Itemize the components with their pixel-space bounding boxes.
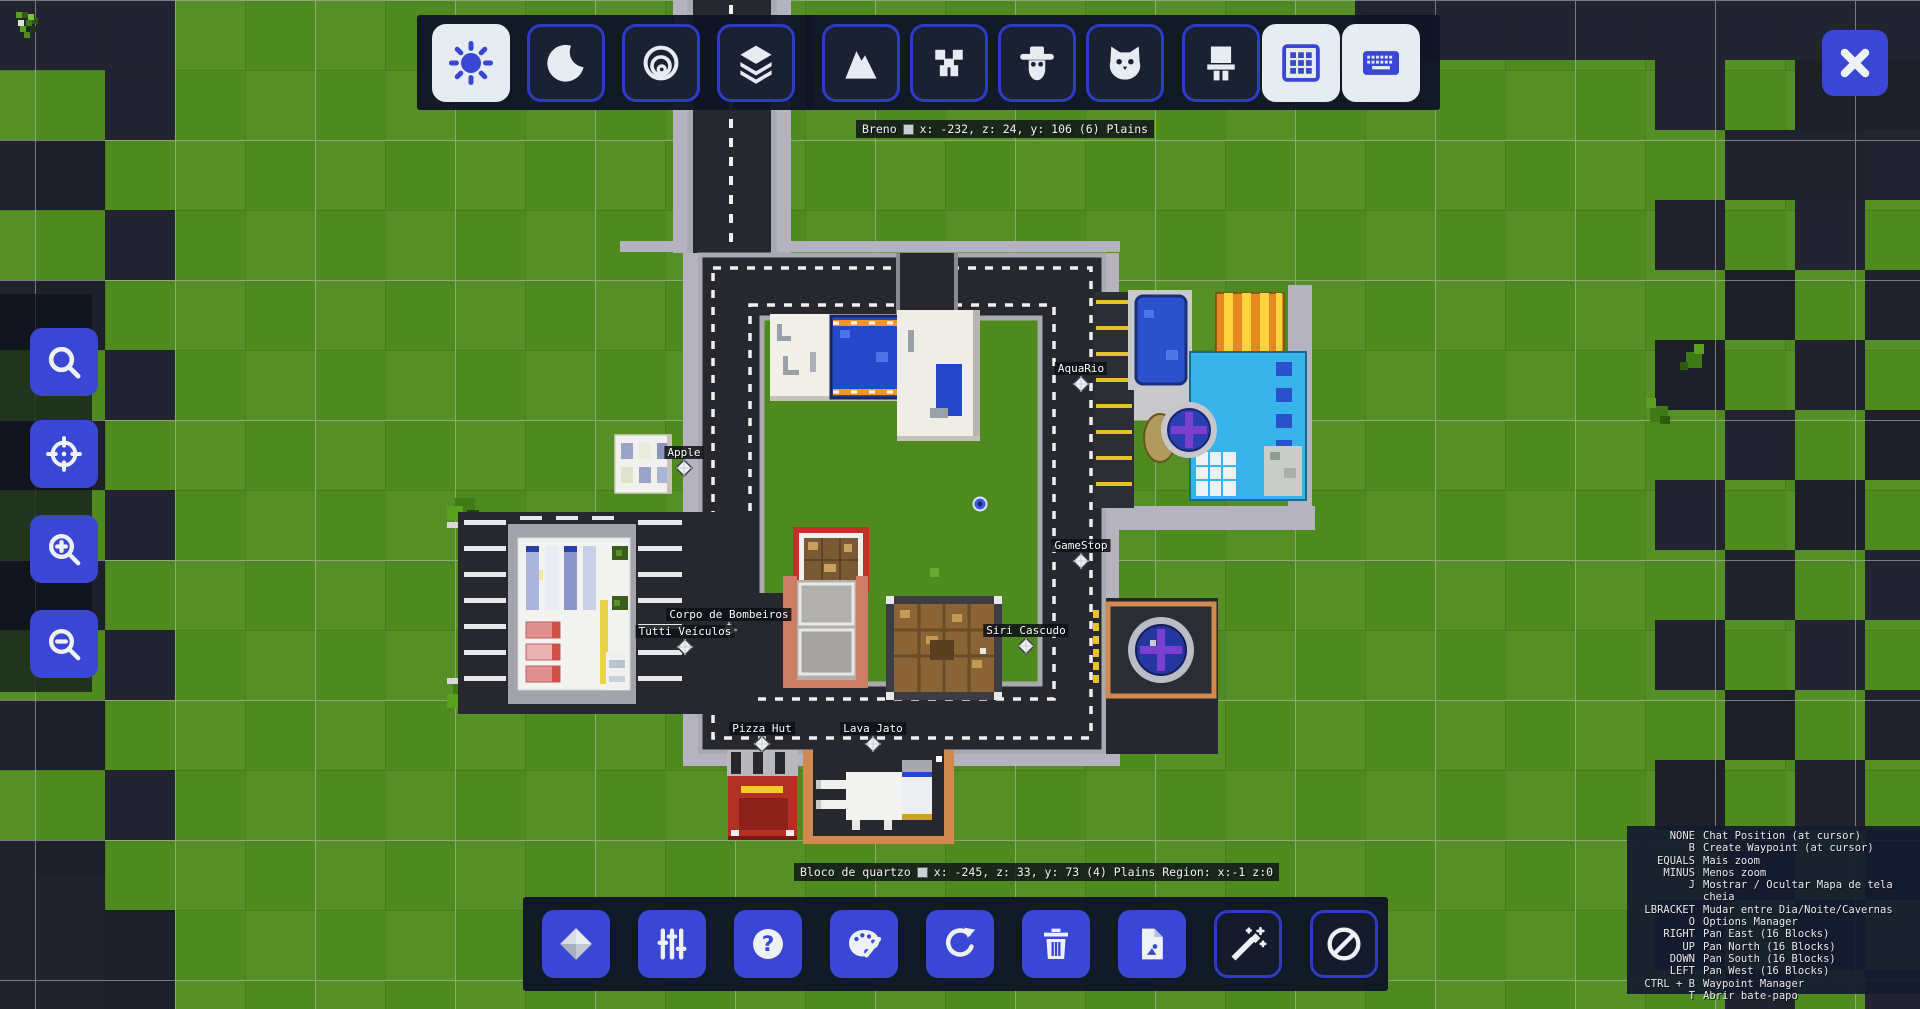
keybind-row: LBRACKETMudar entre Dia/Noite/Cavernas: [1627, 904, 1916, 916]
palette-icon: [844, 924, 884, 964]
waypoint-label[interactable]: Lava Jato: [840, 722, 906, 735]
keybind-key: CTRL + B: [1627, 978, 1695, 990]
trash-icon: [1036, 924, 1076, 964]
delete-button[interactable]: [1022, 910, 1090, 978]
bottom-toolbar: ?: [523, 897, 1388, 991]
keybind-key: LBRACKET: [1627, 904, 1695, 916]
waypoint-diamond-icon: [675, 459, 693, 477]
caves-mode-button[interactable]: [622, 24, 700, 102]
waypoint-label[interactable]: Siri Cascudo: [983, 624, 1068, 637]
structures-overlay-button[interactable]: [1182, 24, 1260, 102]
wood-structure: [886, 596, 1002, 700]
keybind-panel: NONEChat Position (at cursor)BCreate Way…: [1627, 826, 1920, 994]
moon-icon: [544, 41, 588, 85]
status-bar-top: Breno x: -232, z: 24, y: 106 (6) Plains: [856, 120, 1154, 138]
layers-button[interactable]: [717, 24, 795, 102]
zoom-out-button[interactable]: [30, 610, 98, 678]
keybind-row: TAbrir bate-papo: [1627, 990, 1916, 1002]
cat-icon: [1103, 41, 1147, 85]
keybind-action: Waypoint Manager: [1703, 978, 1916, 990]
waypoint-label[interactable]: Tutti Veículos: [636, 625, 735, 638]
disable-button[interactable]: [1310, 910, 1378, 978]
file-icon: [1132, 924, 1172, 964]
waypoint-label[interactable]: Corpo de Bombeiros: [666, 608, 791, 621]
mountain-icon: [839, 41, 883, 85]
keybind-row: BCreate Waypoint (at cursor): [1627, 842, 1916, 854]
help-icon: ?: [748, 924, 788, 964]
zoom-out-icon: [44, 624, 84, 664]
refresh-button[interactable]: [926, 910, 994, 978]
waypoints-button[interactable]: [542, 910, 610, 978]
grid-toggle-button[interactable]: [1262, 24, 1340, 102]
villagers-overlay-button[interactable]: [998, 24, 1076, 102]
minimap-logo-icon: [16, 12, 22, 18]
help-button[interactable]: ?: [734, 910, 802, 978]
player-marker: [974, 498, 987, 511]
waypoint-label[interactable]: GameStop: [1052, 539, 1111, 552]
gamestop-building: [1093, 598, 1218, 754]
keyboard-icon: [1358, 40, 1404, 86]
villager-icon: [1015, 41, 1059, 85]
keybind-row: NONEChat Position (at cursor): [1627, 830, 1916, 842]
filter-settings-button[interactable]: [638, 910, 706, 978]
theme-button[interactable]: [830, 910, 898, 978]
block-icon: [903, 124, 914, 135]
block-icon: [917, 867, 928, 878]
keybind-action: Pan North (16 Blocks): [1703, 941, 1916, 953]
waypoint-diamond-icon: [676, 638, 694, 656]
close-button[interactable]: [1822, 30, 1888, 96]
mountains-overlay-button[interactable]: [822, 24, 900, 102]
aquario-south-walk: [1119, 506, 1315, 530]
creeper-icon: [927, 41, 971, 85]
keybind-row: UPPan North (16 Blocks): [1627, 941, 1916, 953]
keybind-action: Options Manager: [1703, 916, 1916, 928]
keybind-row: RIGHTPan East (16 Blocks): [1627, 928, 1916, 940]
keybind-key: NONE: [1627, 830, 1695, 842]
keybind-action: Menos zoom: [1703, 867, 1916, 879]
keybind-key: LEFT: [1627, 965, 1695, 977]
keybind-key: MINUS: [1627, 867, 1695, 879]
waypoint-diamond-icon: [1017, 637, 1035, 655]
keybind-action: Mostrar / Ocultar Mapa de tela cheia: [1703, 879, 1916, 904]
crosshair-icon: [44, 434, 84, 474]
keybind-key: B: [1627, 842, 1695, 854]
creepers-overlay-button[interactable]: [910, 24, 988, 102]
keybind-key: O: [1627, 916, 1695, 928]
keybind-row: CTRL + BWaypoint Manager: [1627, 978, 1916, 990]
center-on-player-button[interactable]: [30, 420, 98, 488]
player-name: Breno: [862, 122, 897, 136]
keybind-action: Create Waypoint (at cursor): [1703, 842, 1916, 854]
keybind-action: Pan East (16 Blocks): [1703, 928, 1916, 940]
structure-icon: [1199, 41, 1243, 85]
day-mode-button[interactable]: [432, 24, 510, 102]
cursor-coordinates: x: -245, z: 33, y: 73 (4) Plains Region:…: [934, 865, 1273, 879]
search-button[interactable]: [30, 328, 98, 396]
grass-patch: [930, 568, 939, 577]
keybind-key: EQUALS: [1627, 855, 1695, 867]
keybind-action: Mudar entre Dia/Noite/Cavernas: [1703, 904, 1916, 916]
keybind-action: Pan West (16 Blocks): [1703, 965, 1916, 977]
keybind-key: DOWN: [1627, 953, 1695, 965]
cancel-icon: [1324, 924, 1364, 964]
keybind-key: UP: [1627, 941, 1695, 953]
keybind-row: EQUALSMais zoom: [1627, 855, 1916, 867]
apple-store: [615, 435, 672, 493]
top-toolbar-left-group: [417, 15, 813, 110]
top-toolbar-right-group: [806, 15, 1440, 110]
waypoint-diamond-icon: [1072, 375, 1090, 393]
zoom-in-button[interactable]: [30, 515, 98, 583]
export-image-button[interactable]: [1118, 910, 1186, 978]
caves-icon: [639, 41, 683, 85]
refresh-icon: [940, 924, 980, 964]
keybind-row: JMostrar / Ocultar Mapa de tela cheia: [1627, 879, 1916, 904]
waypoint-diamond-icon: [753, 735, 771, 753]
svg-text:?: ?: [762, 932, 775, 957]
keybind-row: LEFTPan West (16 Blocks): [1627, 965, 1916, 977]
keybind-key: J: [1627, 879, 1695, 904]
keybind-row: OOptions Manager: [1627, 916, 1916, 928]
keybind-action: Mais zoom: [1703, 855, 1916, 867]
close-icon: [1836, 44, 1874, 82]
cats-overlay-button[interactable]: [1086, 24, 1164, 102]
layers-icon: [734, 41, 778, 85]
waypoint-label[interactable]: AquaRio: [1055, 362, 1107, 375]
zoom-in-icon: [44, 529, 84, 569]
tutti-veiculos-lot: [447, 498, 754, 714]
hovered-block-name: Bloco de quartzo: [800, 865, 911, 879]
night-mode-button[interactable]: [527, 24, 605, 102]
wand-icon: [1228, 924, 1268, 964]
sun-icon: [448, 40, 494, 86]
search-icon: [44, 342, 84, 382]
keybinds-toggle-button[interactable]: [1342, 24, 1420, 102]
world-map-screen: AquaRioAppleGameStopCorpo de BombeirosTu…: [0, 0, 1920, 1009]
keybind-action: Abrir bate-papo: [1703, 990, 1916, 1002]
pizza-hut-building: [727, 750, 798, 840]
keybind-key: T: [1627, 990, 1695, 1002]
waypoint-diamond-icon: [864, 735, 882, 753]
lava-jato-building: [803, 748, 954, 844]
keybind-action: Pan South (16 Blocks): [1703, 953, 1916, 965]
waypoint-label[interactable]: Apple: [664, 446, 703, 459]
keybind-row: DOWNPan South (16 Blocks): [1627, 953, 1916, 965]
player-coordinates: x: -232, z: 24, y: 106 (6) Plains: [920, 122, 1148, 136]
waypoint-label[interactable]: Pizza Hut: [729, 722, 795, 735]
sliders-icon: [652, 924, 692, 964]
waypoint-diamond-icon: [1072, 552, 1090, 570]
keybind-row: MINUSMenos zoom: [1627, 867, 1916, 879]
magic-tool-button[interactable]: [1214, 910, 1282, 978]
grid-icon: [1278, 40, 1324, 86]
diamond-icon: [556, 924, 596, 964]
keybind-key: RIGHT: [1627, 928, 1695, 940]
keybind-action: Chat Position (at cursor): [1703, 830, 1916, 842]
status-bar-bottom: Bloco de quartzo x: -245, z: 33, y: 73 (…: [794, 863, 1279, 881]
